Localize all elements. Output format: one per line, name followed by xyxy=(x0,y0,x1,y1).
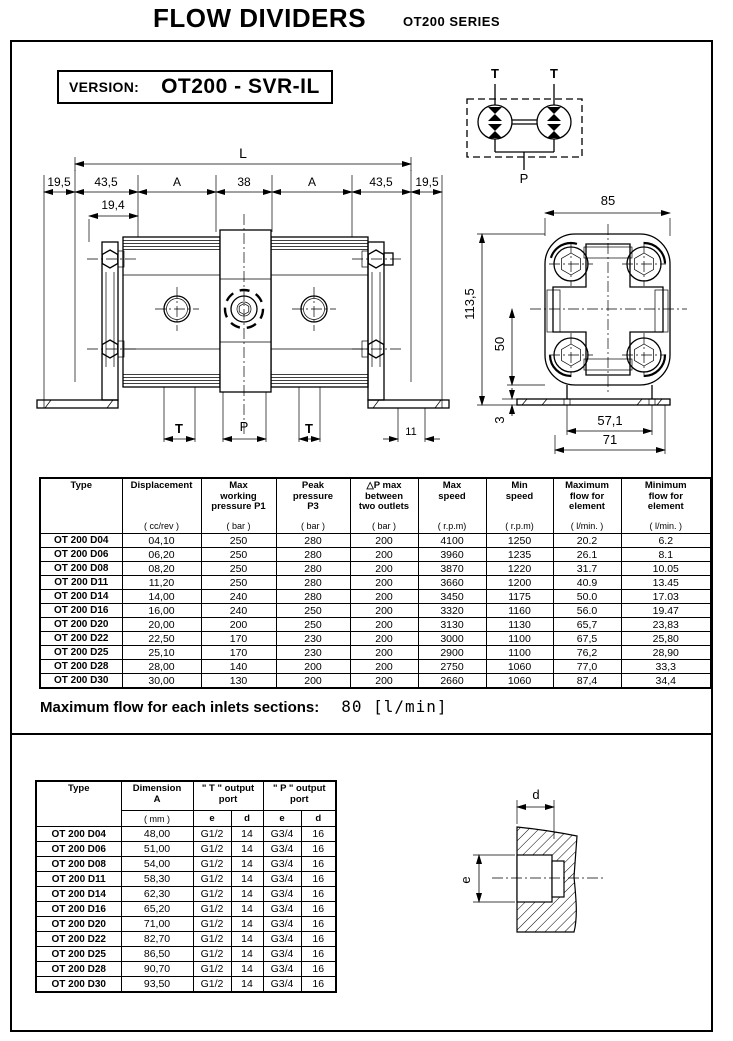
col-delta-p: △P max between two outlets xyxy=(351,479,418,513)
spec-table-body: OT 200 D0404,102502802004100125020.26.2O… xyxy=(40,534,711,689)
dim-19-4: 19,4 xyxy=(101,198,125,212)
table-row: OT 200 D1462,30G1/214G3/416 xyxy=(36,887,336,902)
col-displacement: Displacement xyxy=(123,479,201,492)
front-view-drawing: L 19,5 43,5 A 38 A 43,5 19,5 xyxy=(27,142,452,462)
dim-3: 3 xyxy=(492,416,507,423)
table-row: OT 200 D2525,101702302002900110076,228,9… xyxy=(40,646,711,660)
table-row: OT 200 D0808,202502802003870122031.710.0… xyxy=(40,562,711,576)
section-divider xyxy=(12,733,711,735)
table-row: OT 200 D1111,202502802003660120040.913.4… xyxy=(40,576,711,590)
sub-col-p-e: e xyxy=(263,811,301,827)
end-view-drawing: 85 xyxy=(452,192,733,462)
sub-col-t-d: d xyxy=(231,811,263,827)
schematic-p: P xyxy=(520,171,529,186)
content-frame: VERSION: OT200 - SVR-IL T T P xyxy=(10,40,713,1032)
port-label-p: P xyxy=(240,419,249,434)
spec-table: Type Displacement( cc/rev ) Max working … xyxy=(39,477,712,689)
version-value: OT200 - SVR-IL xyxy=(161,75,320,99)
unit-mm: ( mm ) xyxy=(121,811,193,827)
table-row: OT 200 D2586,50G1/214G3/416 xyxy=(36,947,336,962)
col-type: Type xyxy=(41,479,122,492)
max-flow-label: Maximum flow for each inlets sections: xyxy=(40,699,319,716)
col-t-output-port: " T " output port xyxy=(193,781,263,811)
dim-43-5-left: 43,5 xyxy=(94,175,118,189)
datasheet-page: FLOW DIVIDERS OT200 SERIES VERSION: OT20… xyxy=(0,0,733,1041)
version-label: VERSION: xyxy=(69,79,139,95)
page-title: FLOW DIVIDERS xyxy=(153,3,366,34)
sub-col-t-e: e xyxy=(193,811,231,827)
dim-85: 85 xyxy=(601,193,615,208)
table-row: OT 200 D2020,002002502003130113065,723,8… xyxy=(40,618,711,632)
dim-38: 38 xyxy=(237,175,251,189)
col-p-output-port: " P " output port xyxy=(263,781,336,811)
port-label-t-right: T xyxy=(305,421,313,436)
table-row: OT 200 D0448,00G1/214G3/416 xyxy=(36,827,336,842)
table-row: OT 200 D0651,00G1/214G3/416 xyxy=(36,842,336,857)
max-flow-note: Maximum flow for each inlets sections: 8… xyxy=(40,697,448,716)
col-peak-pressure: Peak pressure P3 xyxy=(277,479,350,513)
flow-divider-valve-icon xyxy=(488,107,561,138)
foot-hatch xyxy=(45,400,441,408)
table-row: OT 200 D2071,00G1/214G3/416 xyxy=(36,917,336,932)
table-row: OT 200 D0404,102502802004100125020.26.2 xyxy=(40,534,711,548)
port-label-t-left: T xyxy=(175,421,183,436)
sub-col-p-d: d xyxy=(301,811,336,827)
dim-19-5-left: 19,5 xyxy=(47,175,71,189)
dim-57-1: 57,1 xyxy=(597,413,622,428)
version-box: VERSION: OT200 - SVR-IL xyxy=(57,70,333,104)
flange-bolts xyxy=(549,242,666,377)
col-max-flow: Maximum flow for element xyxy=(554,479,621,513)
table-row: OT 200 D3093,50G1/214G3/416 xyxy=(36,977,336,993)
dim-19-5-right: 19,5 xyxy=(415,175,439,189)
port-section-drawing: d e xyxy=(437,782,617,957)
col-type: Type xyxy=(36,781,121,827)
table-row: OT 200 D2222,501702302003000110067,525,8… xyxy=(40,632,711,646)
plate-hatch xyxy=(522,399,662,405)
dim-71: 71 xyxy=(603,432,617,447)
dim-50: 50 xyxy=(492,337,507,351)
dim-43-5-right: 43,5 xyxy=(369,175,393,189)
dimension-table-body: OT 200 D0448,00G1/214G3/416OT 200 D0651,… xyxy=(36,827,336,993)
table-row: OT 200 D1665,20G1/214G3/416 xyxy=(36,902,336,917)
table-row: OT 200 D0854,00G1/214G3/416 xyxy=(36,857,336,872)
dim-header-row-1: Type Dimension A " T " output port " P "… xyxy=(36,781,336,811)
table-row: OT 200 D2828,001402002002750106077,033,3 xyxy=(40,660,711,674)
dim-A-right: A xyxy=(308,175,316,189)
table-row: OT 200 D1158,30G1/214G3/416 xyxy=(36,872,336,887)
dim-A-left: A xyxy=(173,175,181,189)
table-row: OT 200 D0606,202502802003960123526.18.1 xyxy=(40,548,711,562)
schematic-t-left: T xyxy=(491,66,499,81)
table-row: OT 200 D2890,70G1/214G3/416 xyxy=(36,962,336,977)
col-max-working-pressure: Max working pressure P1 xyxy=(202,479,276,513)
max-flow-value: 80 [l/min] xyxy=(341,697,447,716)
hydraulic-schematic: T T P xyxy=(457,62,647,186)
col-min-flow: Minimum flow for element xyxy=(622,479,711,513)
schematic-t-right: T xyxy=(550,66,558,81)
dim-L: L xyxy=(239,145,247,161)
spec-header-row: Type Displacement( cc/rev ) Max working … xyxy=(40,478,711,534)
dimension-table: Type Dimension A " T " output port " P "… xyxy=(35,780,337,993)
dim-d: d xyxy=(532,787,539,802)
dim-113-5: 113,5 xyxy=(462,288,477,320)
table-row: OT 200 D1414,002402802003450117550.017.0… xyxy=(40,590,711,604)
col-dimension-a: Dimension A xyxy=(121,781,193,811)
table-row: OT 200 D2282,70G1/214G3/416 xyxy=(36,932,336,947)
series-label: OT200 SERIES xyxy=(403,14,500,29)
table-row: OT 200 D3030,001302002002660106087,434,4 xyxy=(40,674,711,689)
table-row: OT 200 D1616,002402502003320116056.019.4… xyxy=(40,604,711,618)
dim-e: e xyxy=(458,876,473,883)
col-max-speed: Max speed xyxy=(419,479,486,502)
col-min-speed: Min speed xyxy=(487,479,553,502)
dim-11: 11 xyxy=(405,426,416,438)
